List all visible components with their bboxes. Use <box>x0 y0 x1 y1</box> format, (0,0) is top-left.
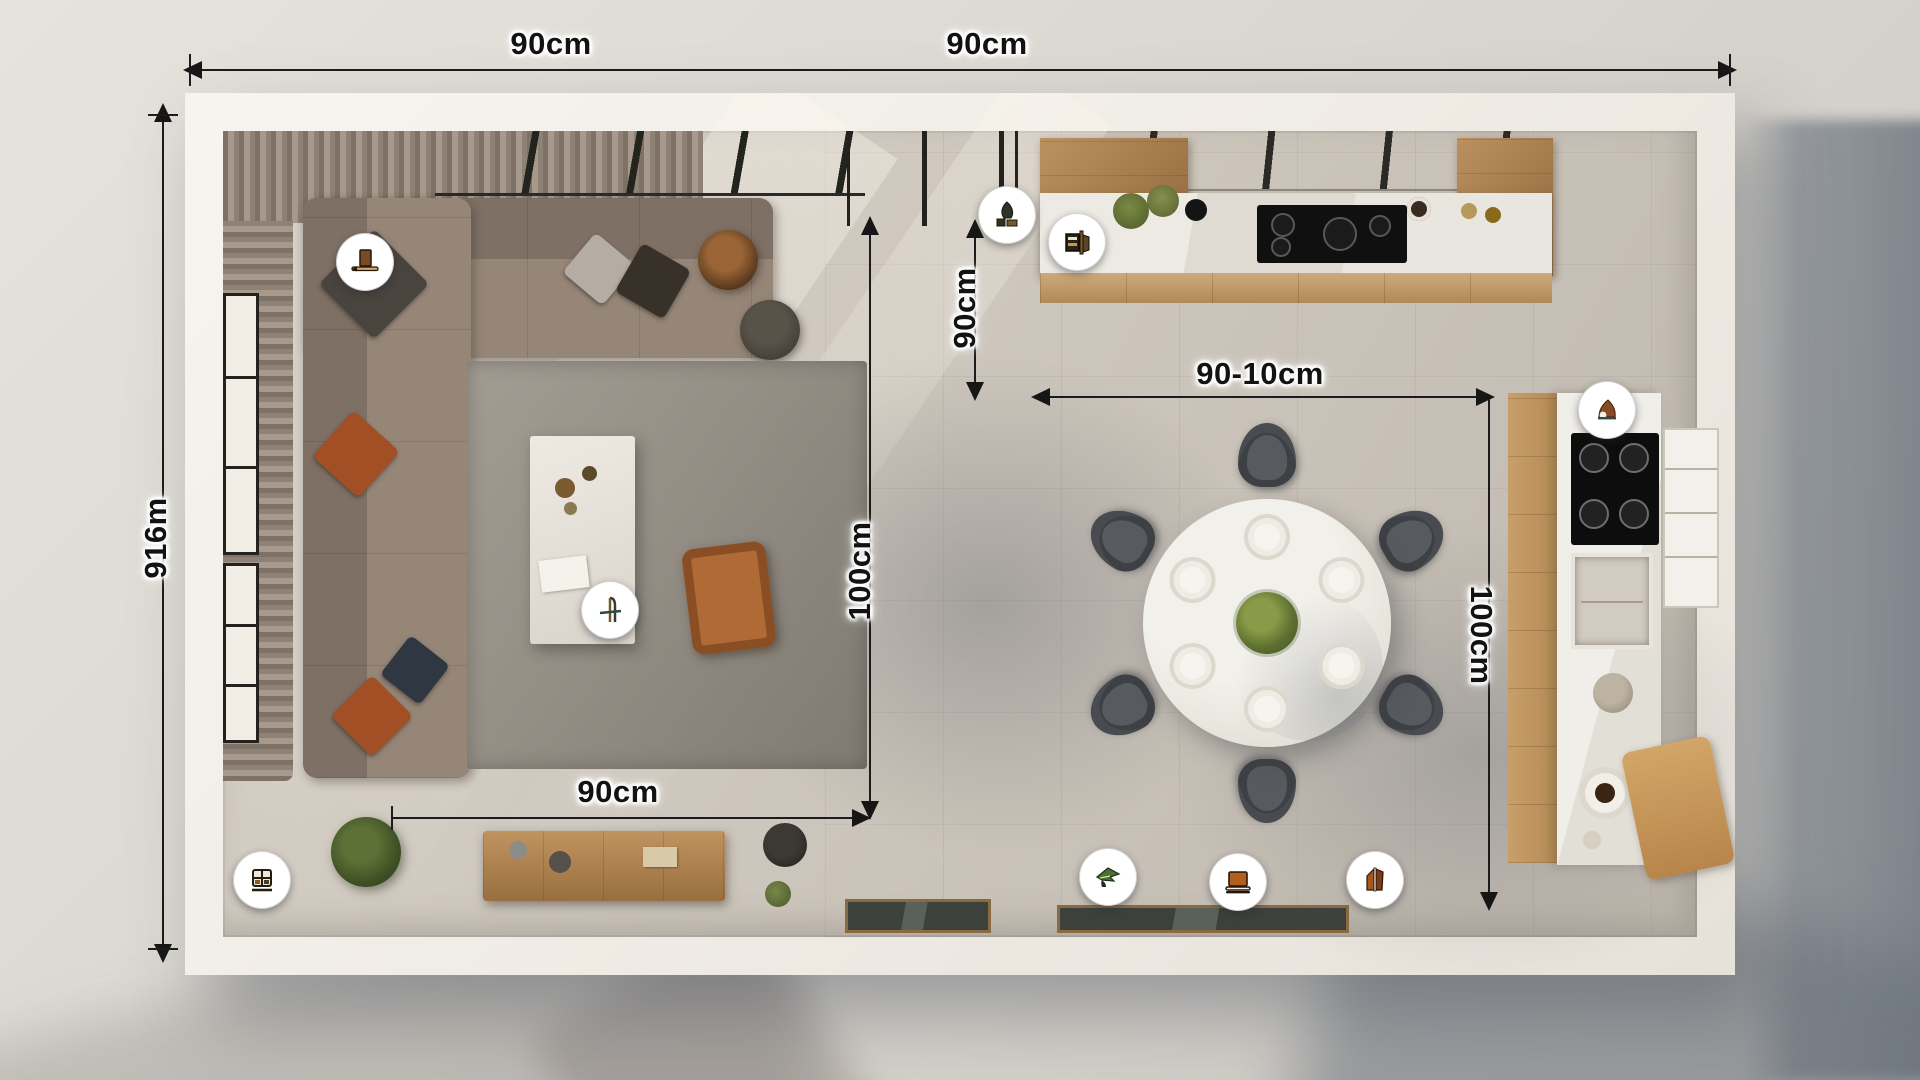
small-plant <box>765 881 791 907</box>
burner <box>1271 237 1291 257</box>
dimension-label-right-vertical: 100cm <box>1463 585 1499 684</box>
dimension-label-top-left: 90cm <box>510 26 591 62</box>
dimension-line-island <box>1038 396 1488 398</box>
dresser-icon-glyph <box>246 864 278 896</box>
island-stove <box>1571 433 1659 545</box>
book-icon-glyph <box>1359 864 1391 896</box>
side-table-lamp <box>698 230 758 290</box>
decor-bowl <box>582 466 597 481</box>
dimension-label-island: 90-10cm <box>1196 356 1324 392</box>
tick <box>148 948 178 950</box>
laptop-icon-glyph <box>1222 866 1254 898</box>
decor-jar <box>564 502 577 515</box>
burner <box>1271 213 1295 237</box>
left-window-lower <box>223 563 259 743</box>
plant-icon[interactable] <box>978 186 1036 244</box>
droplet-icon[interactable] <box>1578 381 1636 439</box>
table-icon-glyph <box>594 594 626 626</box>
table-icon[interactable] <box>581 581 639 639</box>
area-rug <box>467 361 867 769</box>
arrowhead-left <box>1031 388 1050 406</box>
apartment-plan <box>185 93 1735 975</box>
exterior-shadow-right <box>1742 120 1920 1080</box>
tick <box>189 54 191 86</box>
laptop-icon[interactable] <box>1209 853 1267 911</box>
oil-bottle <box>1485 207 1501 223</box>
dimension-label-left: 916m <box>138 497 174 578</box>
leaf-icon[interactable] <box>1079 848 1137 906</box>
burner <box>1619 443 1649 473</box>
droplet-icon-glyph <box>1591 394 1623 426</box>
book-icon[interactable] <box>1346 851 1404 909</box>
glass-floor-panel <box>1057 905 1349 933</box>
island-sink <box>1571 553 1653 649</box>
counter-plant <box>1147 185 1179 217</box>
dimension-label-bottom: 90cm <box>577 774 658 810</box>
side-stool <box>740 300 800 360</box>
burner <box>1323 217 1357 251</box>
floor-plan-scene: 90cm 90cm 916m 90cm 90-10cm 100cm 100cm … <box>0 0 1920 1080</box>
arrowhead-down <box>966 382 984 401</box>
dimension-line-top <box>190 69 1730 71</box>
burner <box>1579 443 1609 473</box>
table-centerpiece <box>1236 592 1298 654</box>
arrowhead-right <box>1476 388 1495 406</box>
dimension-label-center-vertical: 100cm <box>842 521 878 620</box>
coffee-cup <box>1407 197 1431 221</box>
arrowhead-right <box>852 809 871 827</box>
dimension-line-bottom <box>392 817 862 819</box>
glass-floor-panel <box>845 899 991 933</box>
plant-icon-glyph <box>991 199 1023 231</box>
dimension-label-kitchen-vertical: 90cm <box>947 267 983 348</box>
cabinet-icon[interactable] <box>1048 213 1106 271</box>
burner <box>1369 215 1391 237</box>
cabinet-icon-glyph <box>1061 226 1093 258</box>
coffee-cup-large <box>1579 767 1631 819</box>
black-planter <box>763 823 807 867</box>
tick <box>148 114 178 116</box>
arrowhead-right <box>1718 61 1737 79</box>
arrowhead-left <box>183 61 202 79</box>
kettle <box>1185 199 1207 221</box>
spice-jar <box>1461 203 1477 219</box>
arrowhead-up <box>154 103 172 122</box>
cooktop <box>1257 205 1407 263</box>
left-window-upper <box>223 293 259 555</box>
armchair-icon-glyph <box>349 246 381 278</box>
decor-bowl <box>549 851 571 873</box>
arrowhead-down <box>154 944 172 963</box>
dimension-line-center-vertical <box>869 229 871 807</box>
decor-bowl <box>555 478 575 498</box>
plate <box>1244 686 1290 732</box>
shelving-unit <box>1663 428 1719 608</box>
burner <box>1619 499 1649 529</box>
decor-vase <box>509 841 527 859</box>
arrowhead-up <box>861 216 879 235</box>
plate <box>1244 514 1290 560</box>
garlic <box>1583 831 1601 849</box>
mortar-bowl <box>1593 673 1633 713</box>
tv-console <box>483 831 725 901</box>
counter-plant <box>1113 193 1149 229</box>
coffee <box>1595 783 1615 803</box>
leather-chair <box>681 540 777 655</box>
arrowhead-down <box>1480 892 1498 911</box>
dresser-icon[interactable] <box>233 851 291 909</box>
skylight-window <box>435 131 865 196</box>
dimension-label-top-right: 90cm <box>946 26 1027 62</box>
kitchen-base-cabinets <box>1040 273 1552 303</box>
leaf-icon-glyph <box>1092 861 1124 893</box>
decor-box <box>643 847 677 867</box>
armchair-icon[interactable] <box>336 233 394 291</box>
arrowhead-up <box>966 219 984 238</box>
tick <box>391 806 393 830</box>
wood-floor-strip <box>1508 393 1558 863</box>
burner <box>1579 499 1609 529</box>
decor-book <box>538 555 590 593</box>
tick <box>1729 54 1731 86</box>
